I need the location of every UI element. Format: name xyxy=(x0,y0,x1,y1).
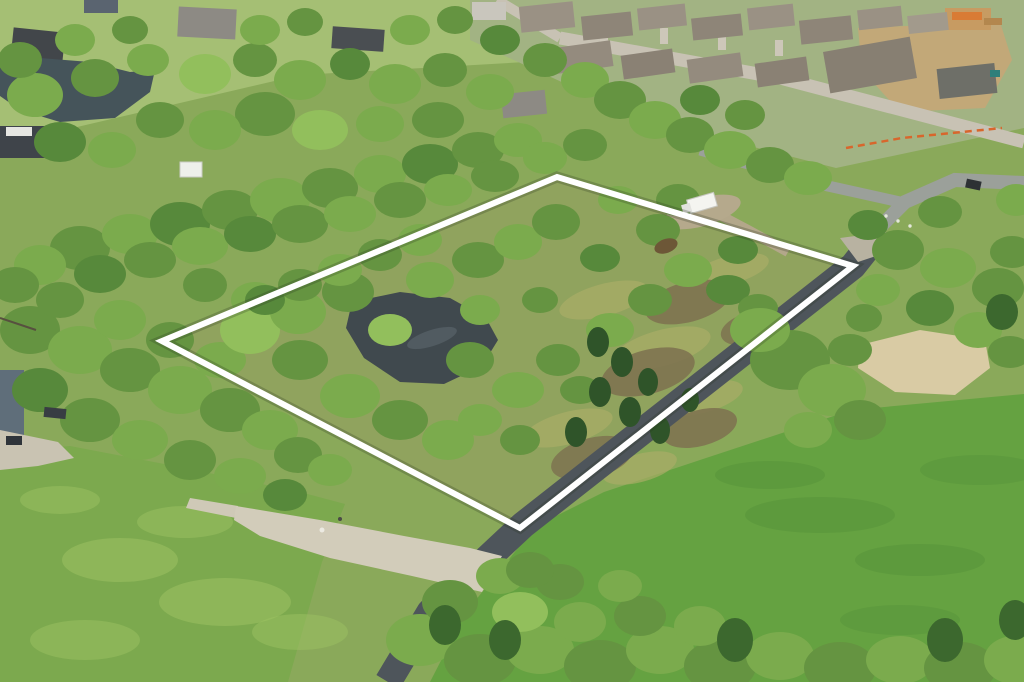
scene xyxy=(0,0,1024,682)
aerial-photo xyxy=(0,0,1024,682)
